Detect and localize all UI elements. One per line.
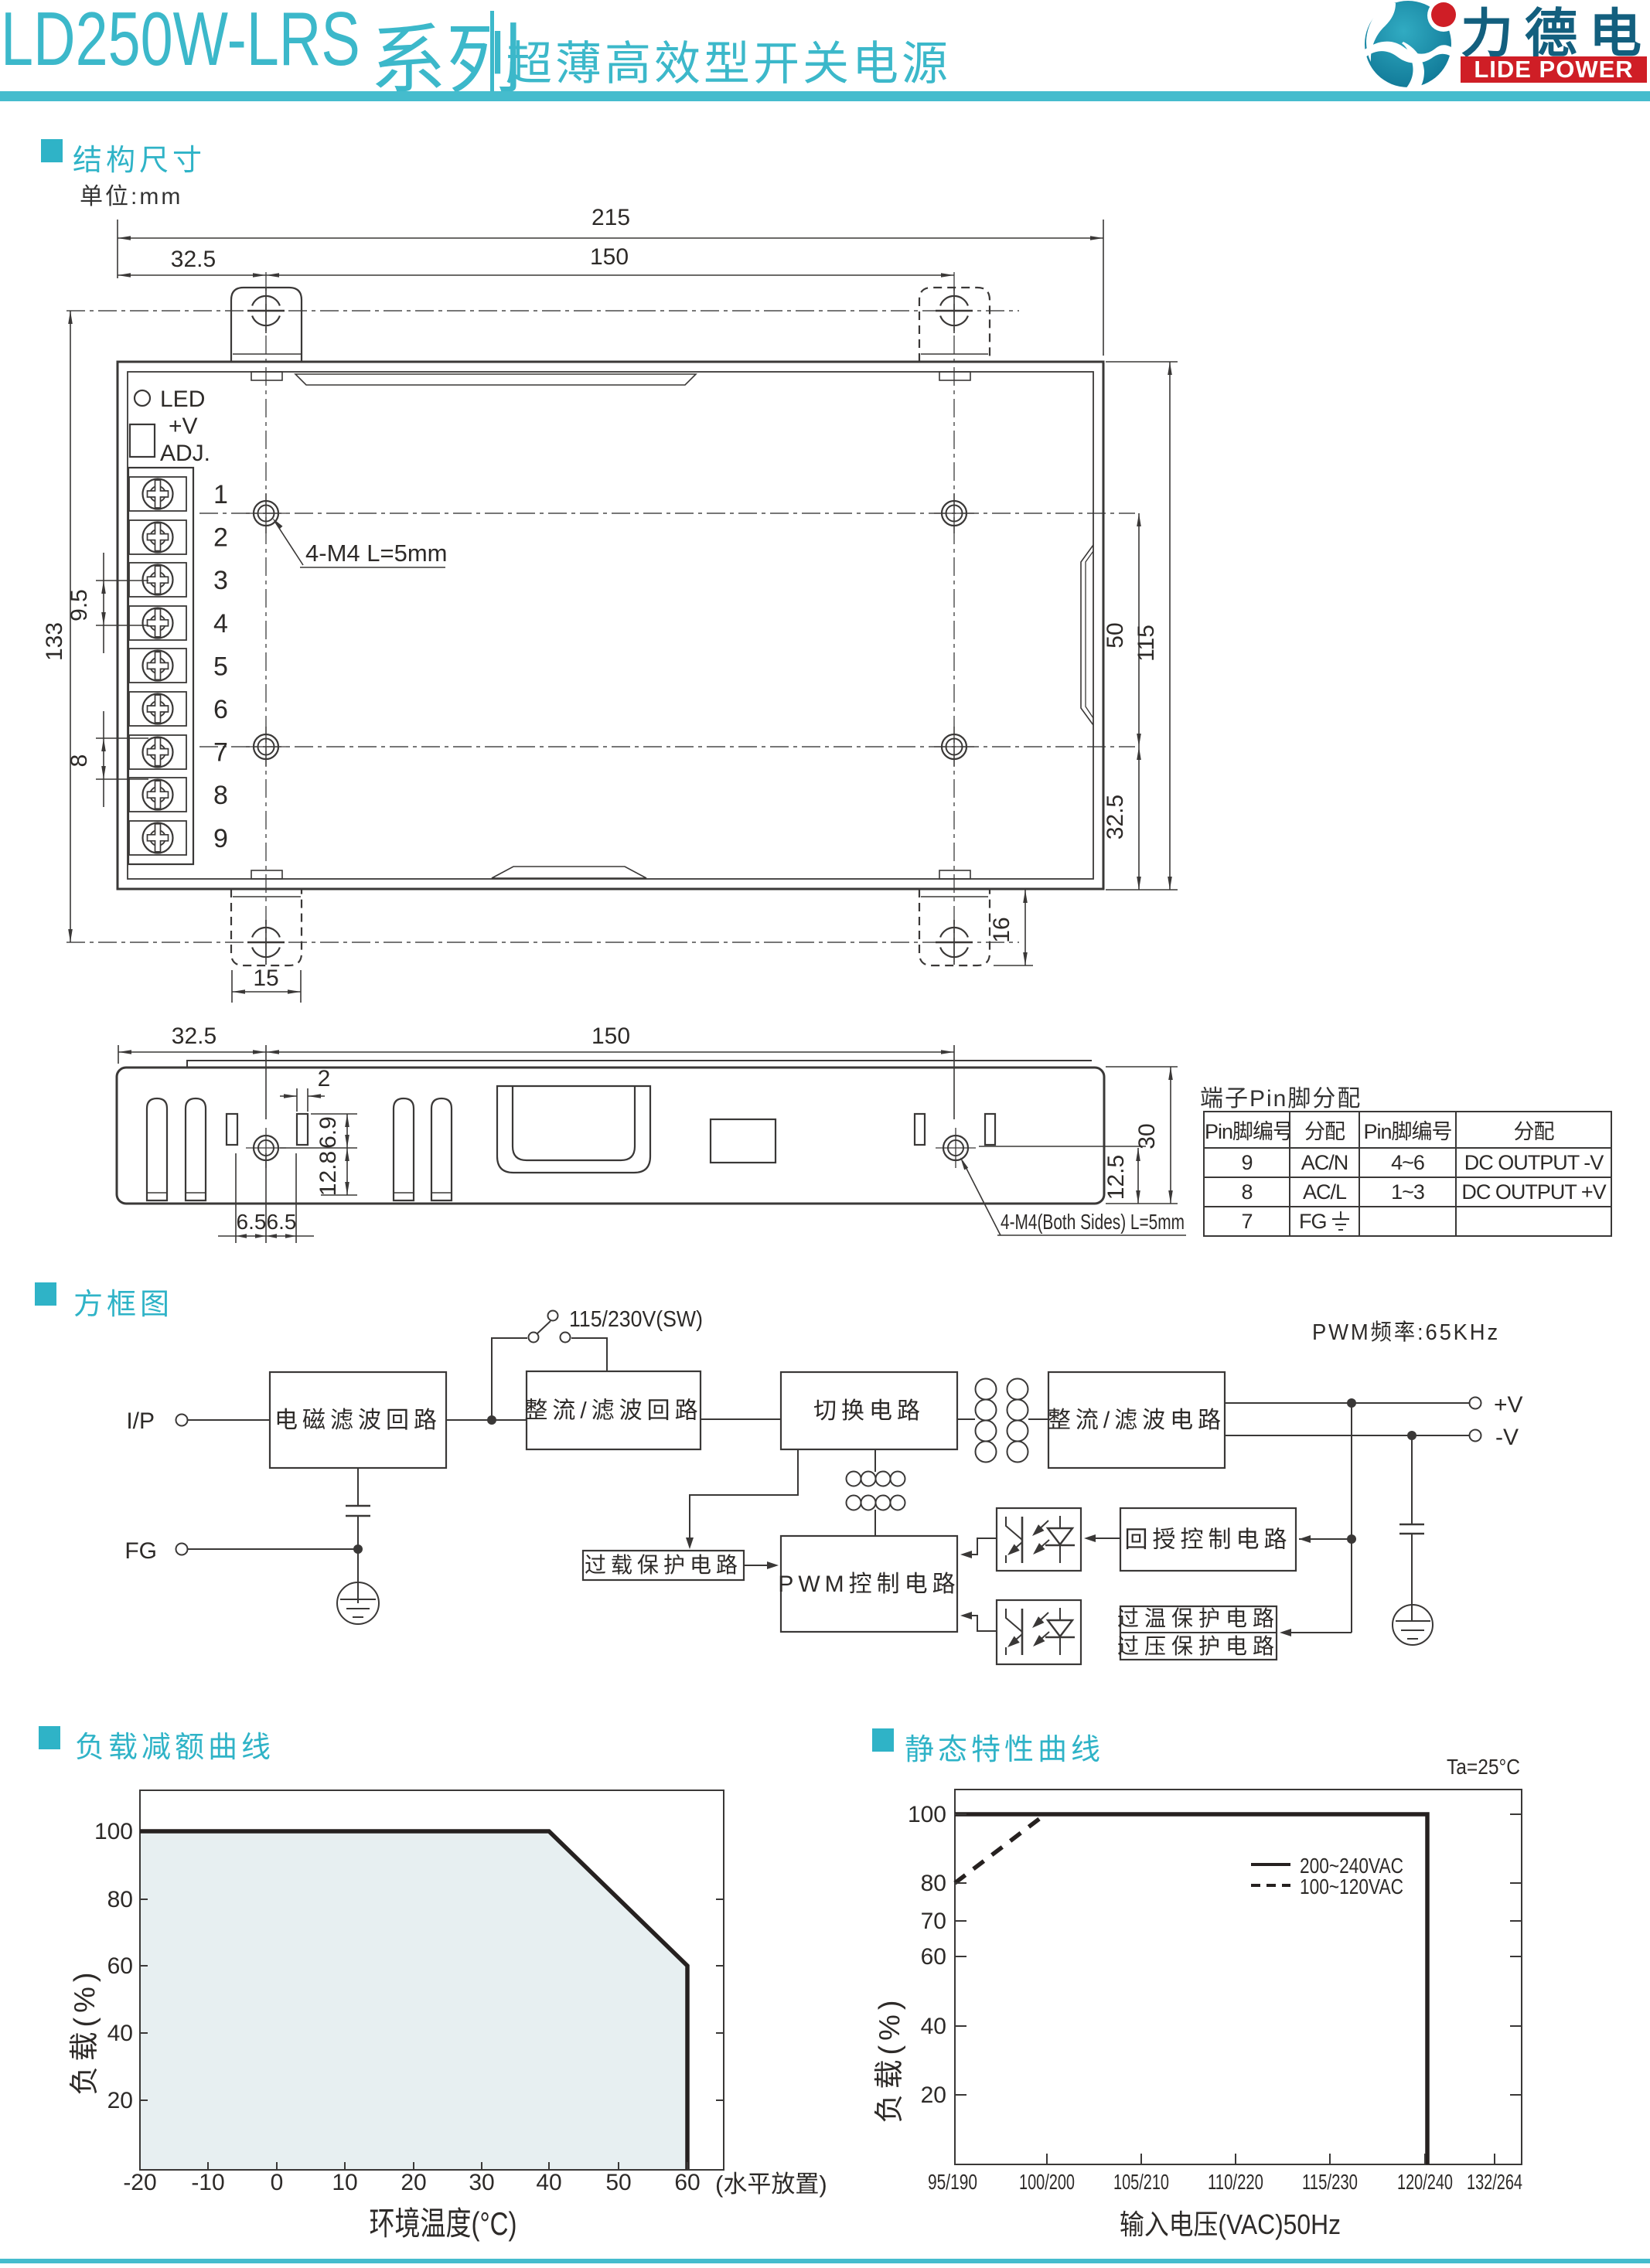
svg-text:12.5: 12.5 <box>1103 1155 1129 1200</box>
svg-text:5: 5 <box>213 652 228 681</box>
svg-text:FG: FG <box>124 1538 157 1564</box>
svg-text:20: 20 <box>921 2082 946 2108</box>
svg-text:15: 15 <box>253 965 278 991</box>
svg-text:过温保护电路: 过温保护电路 <box>1117 1606 1280 1630</box>
svg-text:2: 2 <box>318 1066 331 1091</box>
svg-text:负载(%): 负载(%) <box>69 1967 101 2095</box>
svg-text:20: 20 <box>107 2088 133 2113</box>
svg-text:32.5: 32.5 <box>172 1023 216 1049</box>
svg-text:30: 30 <box>1134 1123 1160 1149</box>
svg-text:3: 3 <box>213 566 228 595</box>
svg-text:100: 100 <box>94 1819 133 1844</box>
svg-text:4-M4(Both Sides) L=5mm: 4-M4(Both Sides) L=5mm <box>1001 1210 1185 1234</box>
svg-text:110/220: 110/220 <box>1208 2170 1263 2194</box>
svg-text:6.5: 6.5 <box>237 1210 267 1234</box>
svg-text:环境温度(°C): 环境温度(°C) <box>370 2205 517 2242</box>
svg-text:100~120VAC: 100~120VAC <box>1300 1875 1403 1899</box>
svg-text:输入电压(VAC)50Hz: 输入电压(VAC)50Hz <box>1120 2208 1341 2240</box>
svg-text:40: 40 <box>921 2014 946 2039</box>
svg-text:2: 2 <box>213 523 228 553</box>
svg-text:215: 215 <box>591 205 630 230</box>
svg-text:LED: LED <box>160 387 205 412</box>
svg-text:50: 50 <box>1103 622 1128 648</box>
svg-text:6.9: 6.9 <box>315 1116 341 1149</box>
svg-text:8: 8 <box>213 781 228 810</box>
svg-text:+V: +V <box>1494 1392 1523 1418</box>
svg-text:50: 50 <box>605 2170 631 2195</box>
svg-text:过压保护电路: 过压保护电路 <box>1117 1634 1280 1658</box>
svg-text:PWM控制电路: PWM控制电路 <box>778 1572 960 1597</box>
svg-text:40: 40 <box>536 2170 561 2195</box>
svg-text:30: 30 <box>469 2170 494 2195</box>
svg-text:115/230V(SW): 115/230V(SW) <box>569 1307 703 1332</box>
svg-text:40: 40 <box>107 2021 133 2046</box>
svg-text:6: 6 <box>213 695 228 724</box>
svg-text:100: 100 <box>908 1802 946 1827</box>
svg-text:80: 80 <box>921 1871 946 1896</box>
svg-text:60: 60 <box>921 1944 946 1970</box>
svg-text:(水平放置): (水平放置) <box>715 2171 827 2198</box>
svg-text:0: 0 <box>271 2170 284 2195</box>
svg-text:12.8: 12.8 <box>315 1151 341 1196</box>
svg-text:105/210: 105/210 <box>1113 2170 1169 2194</box>
svg-text:115/230: 115/230 <box>1302 2170 1358 2194</box>
svg-text:132/264: 132/264 <box>1467 2170 1522 2194</box>
svg-text:60: 60 <box>107 1953 133 1979</box>
svg-text:150: 150 <box>591 1023 630 1049</box>
svg-text:8: 8 <box>66 754 92 768</box>
svg-text:+V: +V <box>169 414 198 439</box>
svg-text:ADJ.: ADJ. <box>160 441 210 466</box>
svg-text:过载保护电路: 过载保护电路 <box>585 1553 742 1577</box>
svg-text:-20: -20 <box>123 2170 156 2195</box>
svg-text:80: 80 <box>107 1887 133 1912</box>
svg-text:7: 7 <box>213 738 228 768</box>
svg-text:115: 115 <box>1134 625 1159 662</box>
svg-text:32.5: 32.5 <box>1103 795 1128 839</box>
svg-text:整流/滤波回路: 整流/滤波回路 <box>524 1398 702 1424</box>
svg-text:10: 10 <box>332 2170 357 2195</box>
svg-text:回授控制电路: 回授控制电路 <box>1125 1527 1292 1553</box>
svg-text:-V: -V <box>1495 1425 1519 1450</box>
svg-text:100/200: 100/200 <box>1019 2170 1075 2194</box>
svg-text:-10: -10 <box>191 2170 224 2195</box>
svg-text:6.5: 6.5 <box>267 1210 297 1234</box>
svg-text:120/240: 120/240 <box>1397 2170 1453 2194</box>
svg-text:负载(%): 负载(%) <box>874 1995 906 2123</box>
svg-text:32.5: 32.5 <box>171 247 216 272</box>
svg-text:16: 16 <box>989 917 1014 942</box>
svg-text:Ta=25°C: Ta=25°C <box>1447 1755 1520 1779</box>
svg-text:150: 150 <box>590 244 629 270</box>
svg-text:4: 4 <box>213 609 228 639</box>
svg-text:9: 9 <box>213 824 228 853</box>
svg-text:133: 133 <box>42 622 67 661</box>
svg-text:4-M4 L=5mm: 4-M4 L=5mm <box>305 540 447 567</box>
svg-text:整流/滤波电路: 整流/滤波电路 <box>1048 1408 1226 1433</box>
svg-text:60: 60 <box>674 2170 700 2195</box>
svg-text:PWM频率:65KHz: PWM频率:65KHz <box>1312 1320 1500 1345</box>
svg-text:95/190: 95/190 <box>928 2170 977 2194</box>
svg-text:电磁滤波回路: 电磁滤波回路 <box>274 1408 441 1433</box>
svg-text:I/P: I/P <box>126 1408 155 1434</box>
svg-text:切换电路: 切换电路 <box>813 1398 925 1424</box>
svg-text:70: 70 <box>921 1909 946 1934</box>
svg-text:1: 1 <box>213 480 228 509</box>
svg-text:9.5: 9.5 <box>66 589 92 621</box>
svg-text:20: 20 <box>401 2170 426 2195</box>
